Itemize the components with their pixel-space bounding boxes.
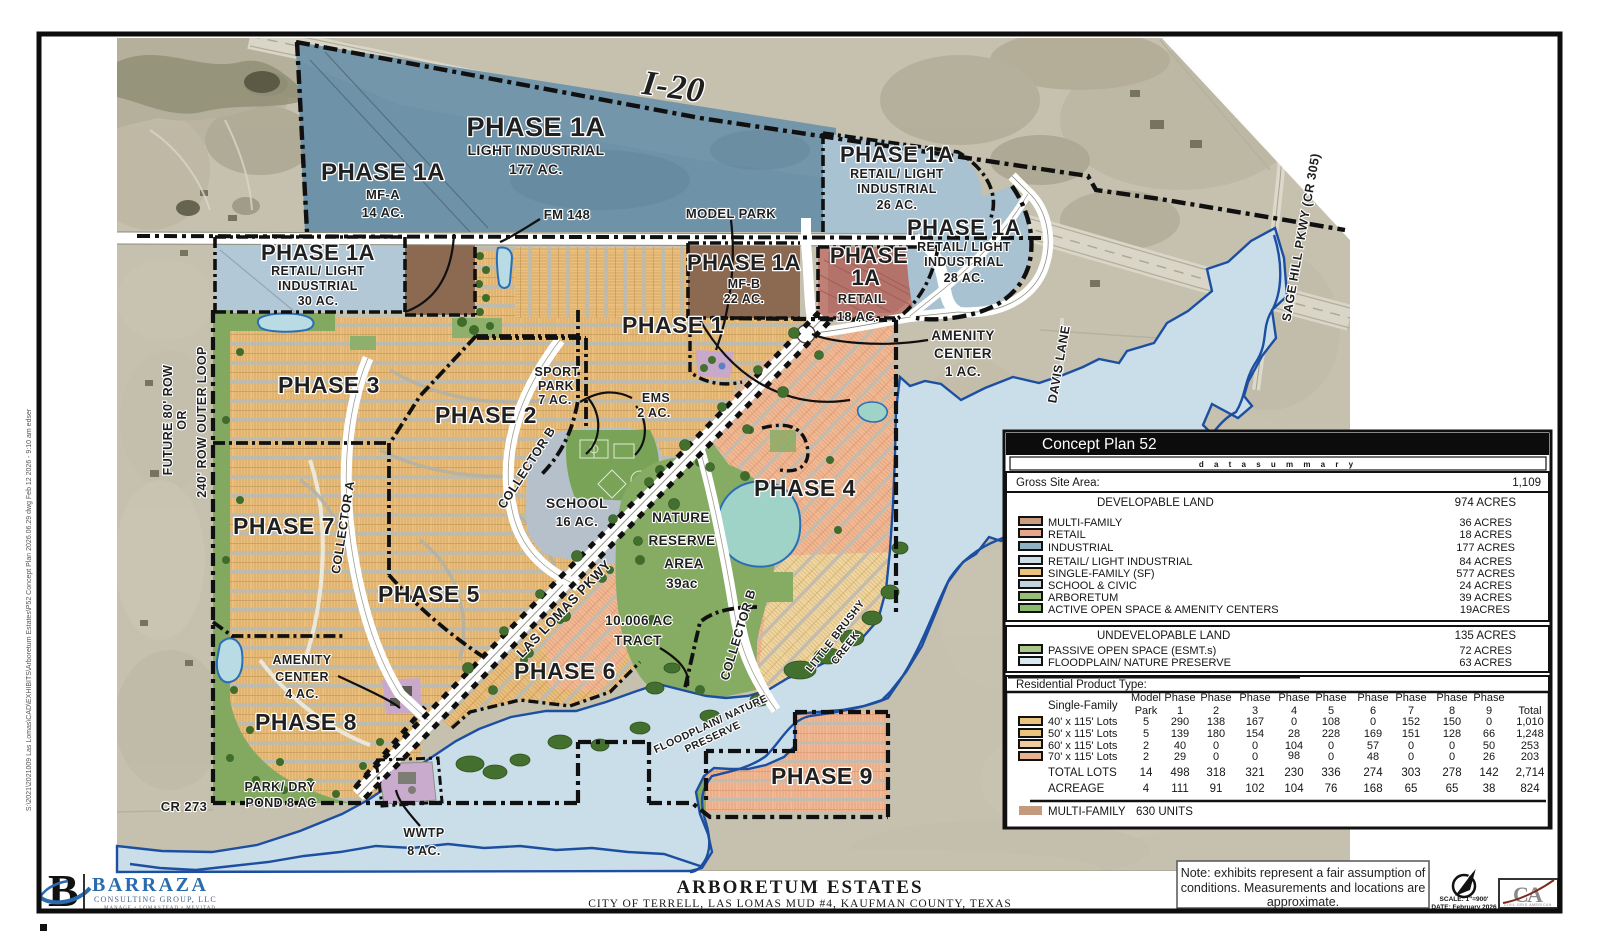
svg-text:577 ACRES: 577 ACRES — [1456, 568, 1515, 580]
svg-text:LIGHT INDUSTRIAL: LIGHT INDUSTRIAL — [467, 142, 604, 158]
svg-text:0: 0 — [1486, 716, 1492, 728]
svg-text:approximate.: approximate. — [1267, 895, 1339, 909]
svg-text:PHASE 9: PHASE 9 — [771, 763, 873, 789]
svg-text:22 AC.: 22 AC. — [724, 292, 765, 306]
svg-text:Phase: Phase — [1278, 692, 1309, 704]
svg-text:50' x 115' Lots: 50' x 115' Lots — [1048, 728, 1118, 740]
svg-text:104: 104 — [1284, 783, 1304, 795]
svg-text:19ACRES: 19ACRES — [1460, 604, 1510, 616]
svg-text:MULTI-FAMILY: MULTI-FAMILY — [1048, 517, 1123, 529]
svg-text:135 ACRES: 135 ACRES — [1455, 630, 1517, 642]
svg-text:26 AC.: 26 AC. — [877, 198, 918, 212]
svg-text:WWTP: WWTP — [403, 826, 444, 840]
svg-text:Note: exhibits represent a fai: Note: exhibits represent a fair assumpti… — [1181, 866, 1426, 880]
svg-text:PHASE 5: PHASE 5 — [378, 581, 480, 607]
svg-text:16 AC.: 16 AC. — [556, 514, 598, 529]
svg-text:Residential Product Type:: Residential Product Type: — [1016, 679, 1147, 691]
svg-text:INDUSTRIAL: INDUSTRIAL — [278, 279, 358, 293]
svg-text:PARK: PARK — [538, 379, 574, 393]
svg-text:UNDEVELOPABLE LAND: UNDEVELOPABLE LAND — [1097, 630, 1230, 642]
svg-text:Phase: Phase — [1239, 692, 1270, 704]
svg-text:EMS: EMS — [642, 391, 670, 405]
svg-text:240' ROW OUTER LOOP: 240' ROW OUTER LOOP — [195, 346, 209, 498]
svg-text:SCHOOL: SCHOOL — [546, 495, 608, 511]
svg-text:28: 28 — [1288, 728, 1300, 740]
svg-text:MULTI-FAMILY: MULTI-FAMILY — [1048, 806, 1126, 818]
svg-text:180: 180 — [1207, 728, 1225, 740]
svg-text:FUTURE 80' ROW: FUTURE 80' ROW — [161, 365, 175, 476]
svg-text:PHASE 1A: PHASE 1A — [687, 250, 801, 275]
svg-text:Phase: Phase — [1357, 692, 1388, 704]
svg-text:1 AC.: 1 AC. — [945, 364, 981, 379]
svg-text:128: 128 — [1443, 728, 1461, 740]
svg-text:Single-Family: Single-Family — [1048, 700, 1118, 712]
svg-text:PHASE 1A: PHASE 1A — [840, 142, 954, 167]
svg-text:167: 167 — [1246, 716, 1264, 728]
svg-text:177 ACRES: 177 ACRES — [1456, 542, 1515, 554]
svg-text:PHASE 1A: PHASE 1A — [261, 240, 375, 265]
svg-text:Phase: Phase — [1436, 692, 1467, 704]
svg-text:1,010: 1,010 — [1516, 716, 1544, 728]
svg-text:48: 48 — [1367, 751, 1379, 763]
svg-text:Phase: Phase — [1315, 692, 1346, 704]
svg-text:CR 273: CR 273 — [161, 799, 207, 814]
svg-text:154: 154 — [1246, 728, 1264, 740]
svg-text:66: 66 — [1483, 728, 1495, 740]
svg-text:91: 91 — [1210, 783, 1223, 795]
svg-text:B: B — [48, 865, 79, 916]
svg-text:INDUSTRIAL: INDUSTRIAL — [1048, 542, 1113, 554]
svg-text:RETAIL: RETAIL — [838, 291, 886, 306]
svg-text:76: 76 — [1325, 783, 1338, 795]
svg-text:278: 278 — [1442, 767, 1461, 779]
svg-text:2,714: 2,714 — [1516, 767, 1545, 779]
svg-text:139: 139 — [1171, 728, 1189, 740]
svg-text:5: 5 — [1143, 728, 1149, 740]
svg-text:336: 336 — [1321, 767, 1340, 779]
svg-text:102: 102 — [1245, 783, 1264, 795]
svg-text:228: 228 — [1322, 728, 1340, 740]
svg-text:4: 4 — [1143, 783, 1150, 795]
svg-text:0: 0 — [1213, 751, 1219, 763]
svg-text:24 ACRES: 24 ACRES — [1459, 580, 1512, 592]
svg-text:Model: Model — [1131, 692, 1161, 704]
svg-text:72 ACRES: 72 ACRES — [1459, 645, 1512, 657]
svg-text:PARK/ DRY: PARK/ DRY — [245, 780, 316, 794]
svg-text:1,109: 1,109 — [1512, 477, 1541, 489]
svg-text:Concept Plan 52: Concept Plan 52 — [1042, 436, 1157, 453]
svg-text:318: 318 — [1206, 767, 1225, 779]
svg-text:PASSIVE OPEN SPACE (ESMT.s): PASSIVE OPEN SPACE (ESMT.s) — [1048, 645, 1216, 657]
svg-text:39 ACRES: 39 ACRES — [1459, 592, 1512, 604]
svg-text:PHASE 8: PHASE 8 — [255, 709, 357, 735]
svg-text:177 AC.: 177 AC. — [509, 161, 563, 177]
svg-text:0: 0 — [1370, 716, 1376, 728]
svg-text:CITY OF TERRELL, LAS LOMAS MUD: CITY OF TERRELL, LAS LOMAS MUD #4, KAUFM… — [588, 898, 1012, 910]
svg-text:290: 290 — [1171, 716, 1189, 728]
svg-text:INDUSTRIAL: INDUSTRIAL — [857, 182, 937, 196]
svg-text:38: 38 — [1483, 783, 1496, 795]
svg-text:151: 151 — [1402, 728, 1420, 740]
svg-text:NATURE: NATURE — [652, 510, 710, 525]
svg-text:168: 168 — [1363, 783, 1382, 795]
svg-text:ARBORETUM ESTATES: ARBORETUM ESTATES — [676, 877, 923, 898]
svg-text:CONSULTING GROUP, LLC: CONSULTING GROUP, LLC — [94, 895, 217, 904]
svg-text:PHASE 1: PHASE 1 — [622, 312, 724, 338]
svg-text:14 AC.: 14 AC. — [362, 205, 404, 220]
svg-text:28 AC.: 28 AC. — [944, 271, 985, 285]
svg-text:FM 148: FM 148 — [544, 207, 590, 222]
svg-text:Phase: Phase — [1164, 692, 1195, 704]
svg-text:OR: OR — [175, 410, 189, 430]
svg-text:Phase: Phase — [1200, 692, 1231, 704]
svg-text:974 ACRES: 974 ACRES — [1455, 497, 1517, 509]
svg-text:303: 303 — [1401, 767, 1420, 779]
svg-text:AREA: AREA — [664, 556, 704, 571]
svg-text:ARBORETUM: ARBORETUM — [1048, 592, 1118, 604]
svg-text:ACREAGE: ACREAGE — [1048, 783, 1105, 795]
svg-text:RESERVE: RESERVE — [648, 533, 715, 548]
svg-text:98: 98 — [1288, 750, 1300, 762]
svg-text:AMENITY: AMENITY — [272, 653, 331, 667]
svg-text:0: 0 — [1408, 751, 1414, 763]
svg-text:DEVELOPABLE LAND: DEVELOPABLE LAND — [1097, 497, 1214, 509]
svg-text:CIVIL GRID AMERICAN: CIVIL GRID AMERICAN — [1504, 903, 1552, 907]
svg-text:CENTER: CENTER — [934, 346, 992, 361]
svg-text:MF-B: MF-B — [728, 277, 761, 291]
svg-text:203: 203 — [1521, 751, 1539, 763]
svg-text:TRACT: TRACT — [614, 633, 662, 648]
svg-text:PHASE 1A: PHASE 1A — [907, 215, 1021, 240]
svg-text:14: 14 — [1140, 767, 1153, 779]
svg-text:29: 29 — [1174, 751, 1186, 763]
svg-text:65: 65 — [1405, 783, 1418, 795]
svg-text:18 AC.: 18 AC. — [837, 309, 879, 324]
svg-text:0: 0 — [1252, 751, 1258, 763]
svg-text:SCALE: 1"=900': SCALE: 1"=900' — [1440, 896, 1489, 903]
svg-text:POND 8 AC: POND 8 AC — [245, 796, 316, 810]
svg-text:152: 152 — [1402, 716, 1420, 728]
svg-text:FLOODPLAIN/ NATURE PRESERVE: FLOODPLAIN/ NATURE PRESERVE — [1048, 657, 1231, 669]
svg-text:5: 5 — [1143, 716, 1149, 728]
svg-text:TOTAL LOTS: TOTAL LOTS — [1048, 767, 1117, 779]
svg-text:S:\2021\2021009 Las Lomas\CAD: S:\2021\2021009 Las Lomas\CAD\EXHIBITS\A… — [26, 408, 33, 811]
svg-text:10.006 AC: 10.006 AC — [605, 613, 673, 628]
svg-text:18 ACRES: 18 ACRES — [1459, 529, 1512, 541]
svg-text:630 UNITS: 630 UNITS — [1136, 806, 1193, 818]
svg-text:0: 0 — [1449, 751, 1455, 763]
svg-text:d a t a s u m m a r y: d a t a s u m m a r y — [1199, 460, 1357, 469]
svg-text:AMENITY: AMENITY — [931, 328, 995, 343]
svg-text:63 ACRES: 63 ACRES — [1459, 657, 1512, 669]
svg-text:PHASE 4: PHASE 4 — [754, 475, 856, 501]
svg-text:PHASE 3: PHASE 3 — [278, 372, 380, 398]
svg-text:1,248: 1,248 — [1516, 728, 1544, 740]
svg-text:8 AC.: 8 AC. — [407, 844, 441, 858]
svg-text:84 ACRES: 84 ACRES — [1459, 556, 1512, 568]
svg-text:Gross Site Area:: Gross Site Area: — [1016, 477, 1100, 489]
svg-text:PHASE 1A: PHASE 1A — [466, 112, 605, 142]
svg-text:65: 65 — [1446, 783, 1459, 795]
svg-text:SINGLE-FAMILY (SF): SINGLE-FAMILY (SF) — [1048, 568, 1155, 580]
svg-text:0: 0 — [1291, 716, 1297, 728]
svg-text:111: 111 — [1171, 783, 1188, 795]
svg-text:conditions. Measurements and l: conditions. Measurements and locations a… — [1181, 881, 1426, 895]
svg-text:498: 498 — [1170, 767, 1189, 779]
svg-text:PHASE 1A: PHASE 1A — [321, 159, 445, 186]
svg-text:ACTIVE OPEN SPACE & AMENITY CE: ACTIVE OPEN SPACE & AMENITY CENTERS — [1048, 604, 1279, 616]
svg-text:SCHOOL & CIVIC: SCHOOL & CIVIC — [1048, 580, 1137, 592]
svg-text:2 AC.: 2 AC. — [637, 406, 671, 420]
svg-text:1A: 1A — [851, 265, 880, 290]
svg-text:108: 108 — [1322, 716, 1340, 728]
svg-text:CENTER: CENTER — [275, 670, 329, 684]
svg-text:MF-A: MF-A — [366, 187, 400, 202]
svg-text:Phase: Phase — [1473, 692, 1504, 704]
svg-text:PHASE 2: PHASE 2 — [435, 402, 537, 428]
svg-text:4 AC.: 4 AC. — [285, 687, 319, 701]
svg-text:36 ACRES: 36 ACRES — [1459, 517, 1512, 529]
svg-text:40' x 115' Lots: 40' x 115' Lots — [1048, 716, 1118, 728]
svg-text:824: 824 — [1520, 783, 1540, 795]
svg-text:SPORT: SPORT — [534, 365, 579, 379]
svg-text:MODEL PARK: MODEL PARK — [686, 206, 776, 221]
svg-text:RETAIL/ LIGHT: RETAIL/ LIGHT — [271, 264, 365, 278]
svg-text:169: 169 — [1364, 728, 1382, 740]
svg-text:150: 150 — [1443, 716, 1461, 728]
svg-text:PHASE 7: PHASE 7 — [233, 513, 335, 539]
svg-text:0: 0 — [1328, 751, 1334, 763]
svg-text:30 AC.: 30 AC. — [298, 294, 339, 308]
svg-text:RETAIL/ LIGHT: RETAIL/ LIGHT — [850, 167, 944, 181]
svg-text:INDUSTRIAL: INDUSTRIAL — [924, 255, 1004, 269]
svg-text:321: 321 — [1245, 767, 1264, 779]
svg-text:142: 142 — [1479, 767, 1498, 779]
svg-text:26: 26 — [1483, 751, 1495, 763]
svg-text:138: 138 — [1207, 716, 1225, 728]
svg-text:RETAIL: RETAIL — [1048, 529, 1086, 541]
svg-text:230: 230 — [1284, 767, 1303, 779]
svg-text:39ac: 39ac — [666, 576, 698, 591]
svg-text:274: 274 — [1363, 767, 1383, 779]
svg-text:PHASE 6: PHASE 6 — [514, 658, 616, 684]
svg-text:RETAIL/ LIGHT INDUSTRIAL: RETAIL/ LIGHT INDUSTRIAL — [1048, 556, 1192, 568]
svg-text:70' x 115' Lots: 70' x 115' Lots — [1048, 751, 1118, 763]
svg-text:7 AC.: 7 AC. — [538, 393, 572, 407]
svg-text:2: 2 — [1143, 751, 1149, 763]
svg-text:BARRAZA: BARRAZA — [92, 874, 208, 896]
svg-text:RETAIL/ LIGHT: RETAIL/ LIGHT — [917, 240, 1011, 254]
svg-text:Phase: Phase — [1395, 692, 1426, 704]
